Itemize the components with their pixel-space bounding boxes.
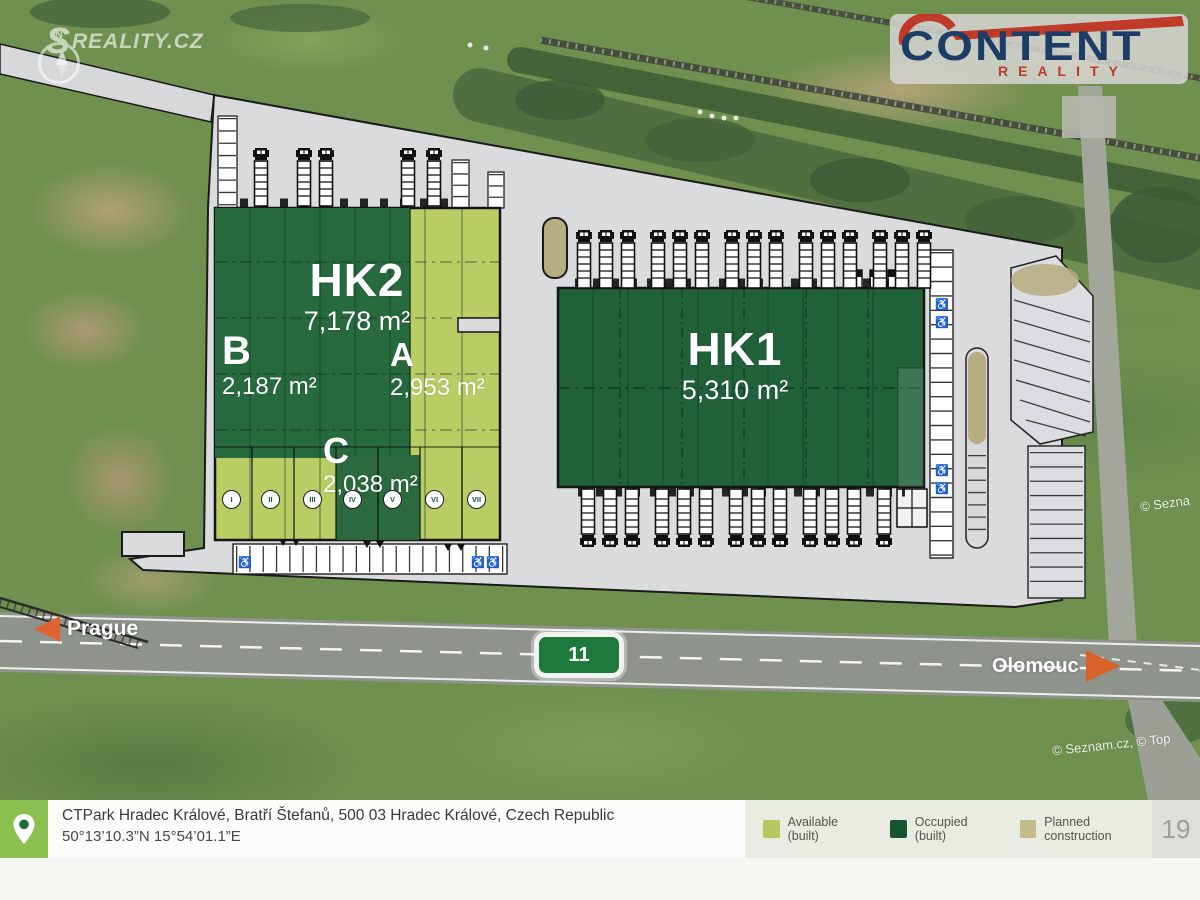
section-c-label: C 2,038 m² [323, 432, 418, 497]
unit-badge-3: III [303, 490, 322, 509]
route-11-shield: 11 [534, 632, 624, 678]
map-pin-icon [11, 813, 37, 845]
legend: Available (built) Occupied (built) Plann… [745, 800, 1152, 858]
legend-item-available: Available (built) [763, 815, 866, 843]
svg-text:♿: ♿ [935, 298, 949, 311]
sreality-watermark: S REALITY.CZ N [20, 12, 240, 122]
olomouc-label: Olomouc [992, 655, 1079, 678]
unit-badge-1: I [222, 490, 241, 509]
olomouc-direction: Olomouc [992, 650, 1120, 682]
west-arrow-icon [34, 616, 60, 642]
prague-direction: Prague [34, 616, 138, 642]
coordinates-text: 50°13’10.3”N 15°54’01.1”E [62, 828, 614, 845]
unit-badge-6: VI [425, 490, 444, 509]
location-pin-box [0, 800, 48, 858]
location-block: CTPark Hradec Králové, Bratří Štefanů, 5… [62, 807, 614, 845]
site-plan-map: ♿♿♿ ♿♿ ♿♿ HK2 7,178 m² B 2,187 m² A 2,95… [0, 0, 1200, 800]
section-a-label: A 2,953 m² [390, 338, 485, 400]
footer-margin [0, 858, 1200, 900]
svg-text:♿: ♿ [935, 316, 949, 329]
svg-text:♿: ♿ [471, 556, 485, 569]
compass-icon: N [38, 42, 80, 84]
address-text: CTPark Hradec Králové, Bratří Štefanů, 5… [62, 807, 614, 825]
unit-badge-2: II [261, 490, 280, 509]
svg-text:♿: ♿ [935, 482, 949, 495]
legend-item-occupied: Occupied (built) [890, 815, 995, 843]
info-bar: CTPark Hradec Králové, Bratří Štefanů, 5… [0, 800, 1200, 858]
hk1-label: HK1 5,310 m² [645, 325, 825, 405]
svg-text:♿: ♿ [935, 464, 949, 477]
east-arrow-icon [1086, 650, 1120, 682]
unit-badge-5: V [383, 490, 402, 509]
occupied-swatch [890, 820, 907, 838]
page-number-box: 19 [1152, 800, 1200, 858]
unit-badge-7: VII [467, 490, 486, 509]
planned-swatch [1020, 820, 1037, 838]
page-number: 19 [1162, 814, 1191, 845]
hk2-label: HK2 7,178 m² [272, 256, 442, 336]
svg-text:♿: ♿ [238, 556, 252, 569]
prague-label: Prague [67, 617, 138, 641]
hk2-name: HK2 [272, 256, 442, 304]
gate-bay [122, 532, 184, 556]
hk1-area: 5,310 m² [645, 376, 825, 404]
logo-subtitle: REALITY [998, 63, 1128, 79]
legend-item-planned: Planned construction [1020, 815, 1152, 843]
hk1-name: HK1 [645, 325, 825, 373]
unit-badge-4: IV [343, 490, 362, 509]
available-swatch [763, 820, 780, 838]
content-reality-logo: CONTENT REALITY [890, 14, 1188, 84]
section-b-label: B 2,187 m² [222, 330, 317, 399]
svg-text:♿: ♿ [486, 556, 500, 569]
brochure-page: ♿♿♿ ♿♿ ♿♿ HK2 7,178 m² B 2,187 m² A 2,95… [0, 0, 1200, 900]
